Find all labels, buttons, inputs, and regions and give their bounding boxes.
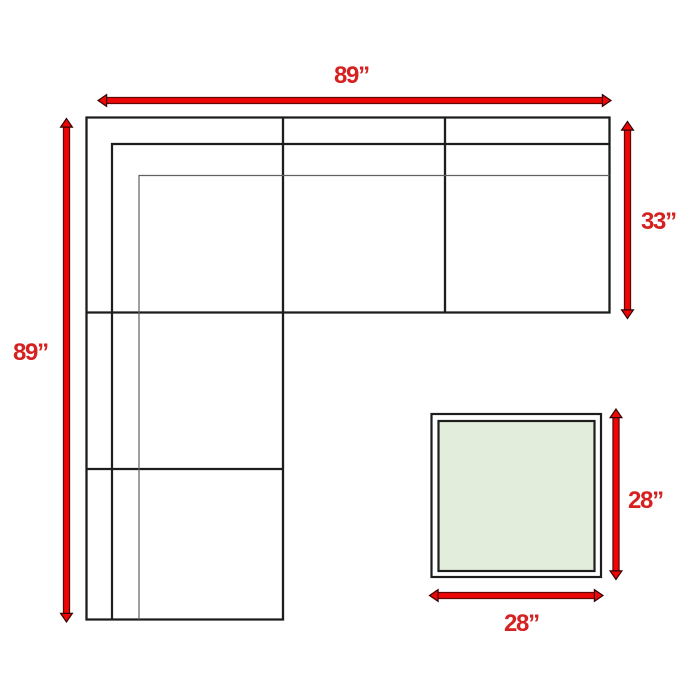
svg-text:28”: 28”: [504, 610, 539, 637]
svg-text:89”: 89”: [13, 339, 48, 366]
svg-text:33”: 33”: [641, 208, 676, 235]
svg-text:89”: 89”: [334, 62, 369, 89]
svg-text:28”: 28”: [628, 487, 663, 514]
